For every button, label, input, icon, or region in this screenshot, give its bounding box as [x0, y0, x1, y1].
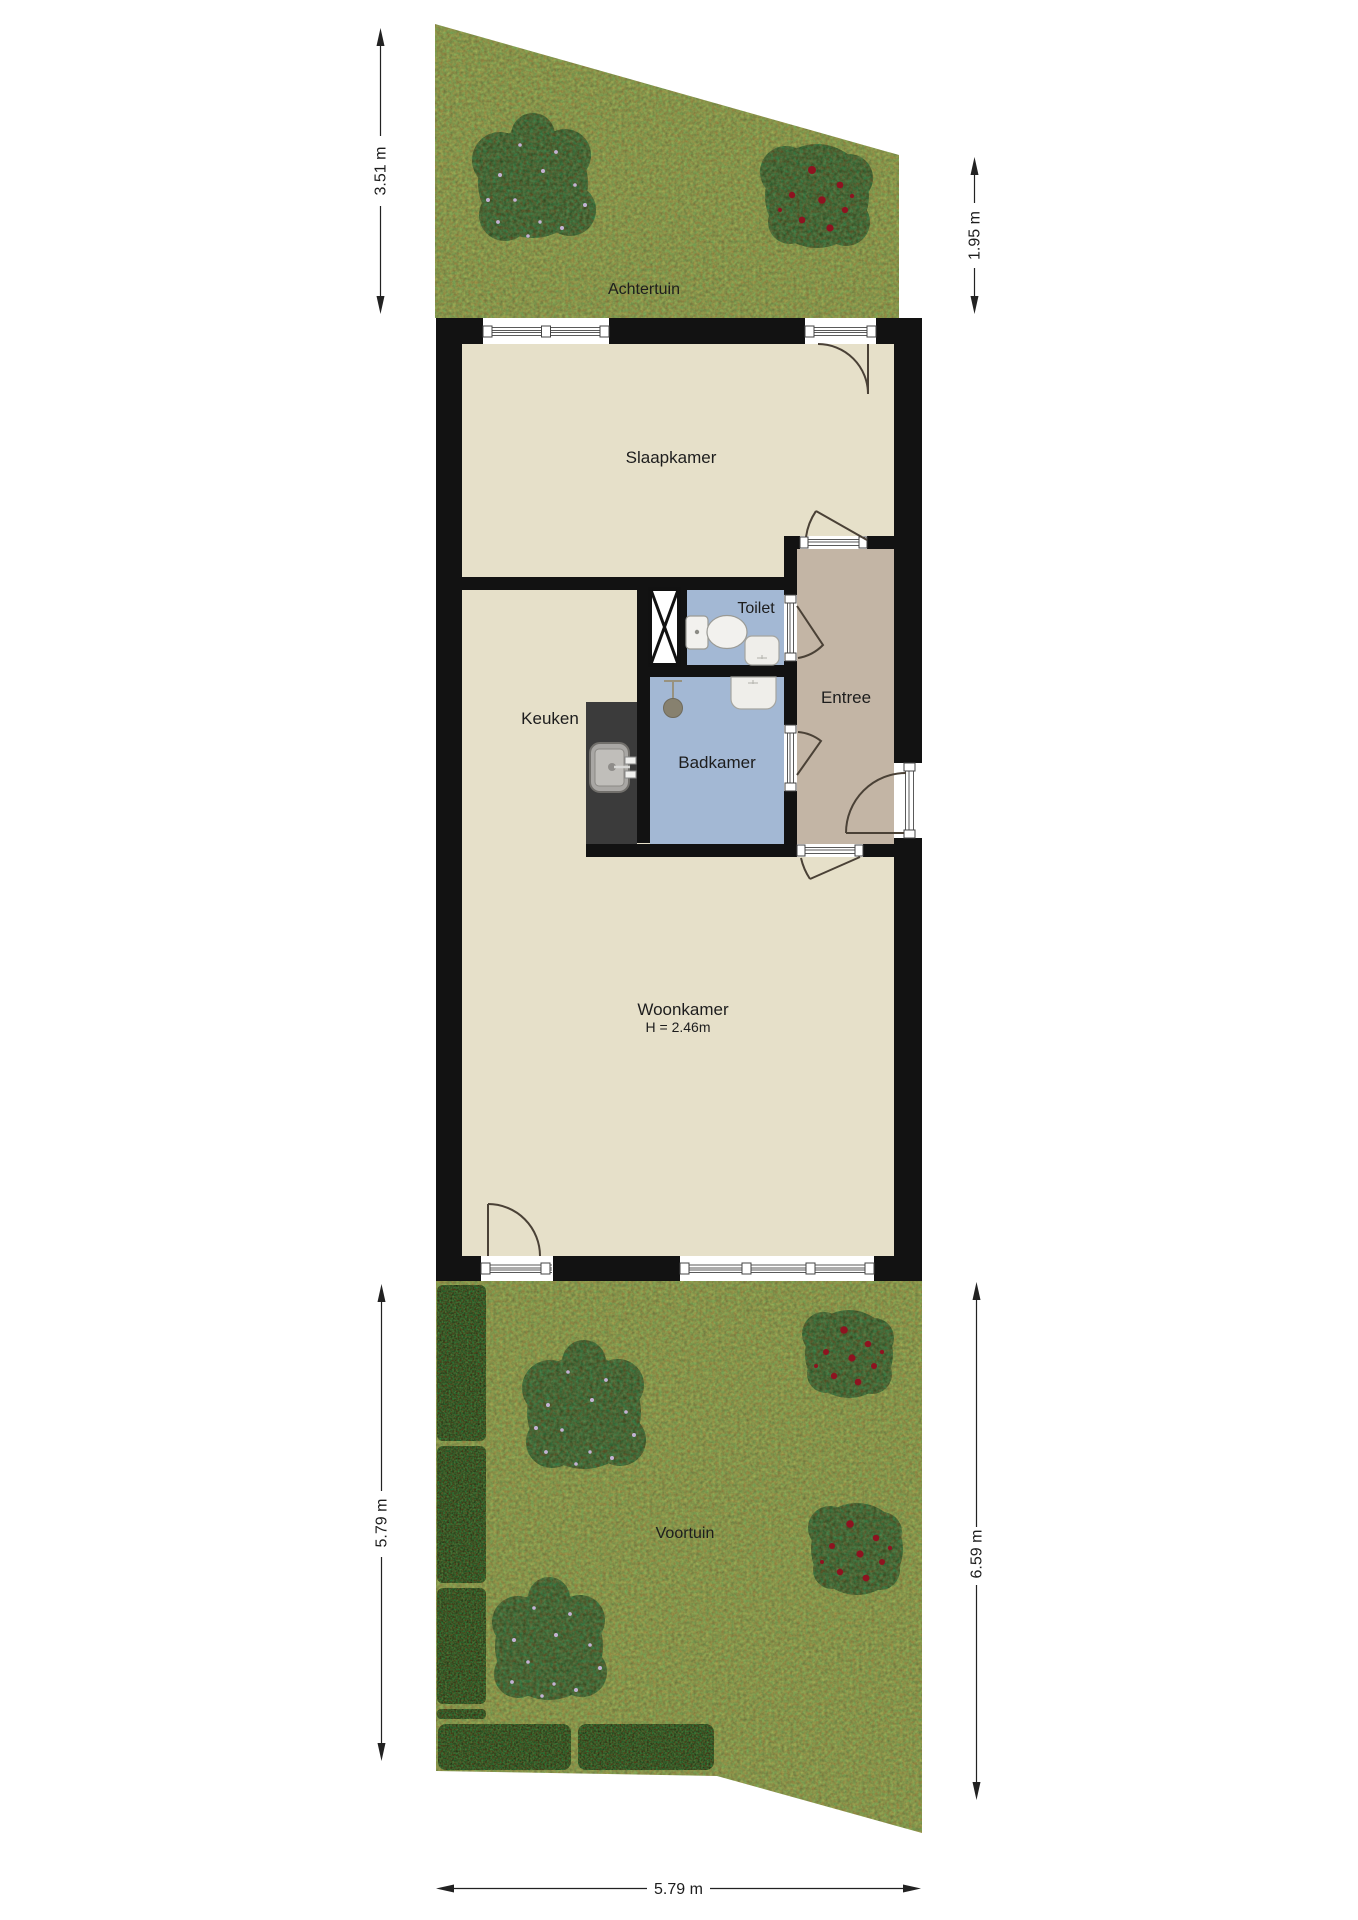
svg-text:Toilet: Toilet — [737, 600, 775, 617]
svg-text:Keuken: Keuken — [521, 709, 579, 728]
svg-text:3.51 m: 3.51 m — [373, 147, 390, 196]
svg-text:Achtertuin: Achtertuin — [608, 281, 680, 298]
svg-text:H = 2.46m: H = 2.46m — [646, 1019, 711, 1035]
svg-text:Woonkamer: Woonkamer — [637, 1000, 729, 1019]
svg-text:Voortuin: Voortuin — [656, 1525, 715, 1542]
svg-text:5.79 m: 5.79 m — [374, 1499, 391, 1548]
svg-text:1.95 m: 1.95 m — [967, 211, 984, 260]
svg-text:Slaapkamer: Slaapkamer — [626, 448, 717, 467]
svg-text:5.79 m: 5.79 m — [654, 1881, 703, 1898]
svg-text:Entree: Entree — [821, 688, 871, 707]
svg-text:Badkamer: Badkamer — [678, 753, 756, 772]
svg-text:6.59 m: 6.59 m — [969, 1530, 986, 1579]
